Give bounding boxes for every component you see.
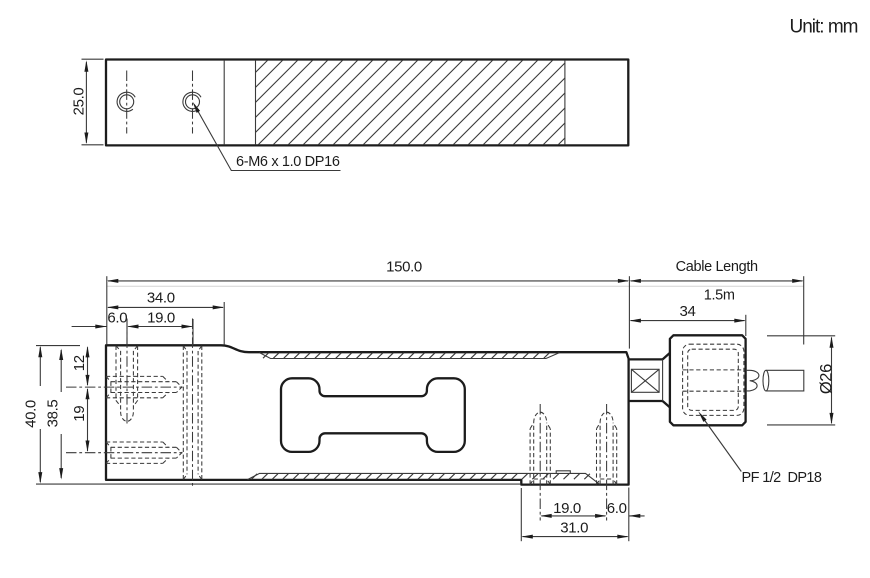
svg-text:12: 12 <box>71 355 88 371</box>
svg-text:1.5m: 1.5m <box>704 288 735 304</box>
svg-text:PF 1/2 DP18: PF 1/2 DP18 <box>742 470 822 486</box>
svg-text:19.0: 19.0 <box>553 500 581 517</box>
svg-text:40.0: 40.0 <box>23 400 40 428</box>
svg-text:19: 19 <box>71 406 88 422</box>
svg-text:Ø26: Ø26 <box>818 364 836 394</box>
svg-text:6.0: 6.0 <box>607 500 627 517</box>
svg-text:6-M6 x 1.0 DP16: 6-M6 x 1.0 DP16 <box>236 154 340 170</box>
svg-text:6.0: 6.0 <box>107 310 127 327</box>
svg-text:25.0: 25.0 <box>70 88 87 116</box>
svg-text:Unit: mm: Unit: mm <box>790 17 858 38</box>
svg-text:Cable Length: Cable Length <box>676 259 758 275</box>
svg-text:34.0: 34.0 <box>147 290 175 307</box>
svg-text:19.0: 19.0 <box>147 310 175 327</box>
svg-text:34: 34 <box>680 303 696 320</box>
svg-text:150.0: 150.0 <box>386 259 422 276</box>
svg-text:31.0: 31.0 <box>560 519 588 536</box>
svg-text:38.5: 38.5 <box>44 400 61 428</box>
